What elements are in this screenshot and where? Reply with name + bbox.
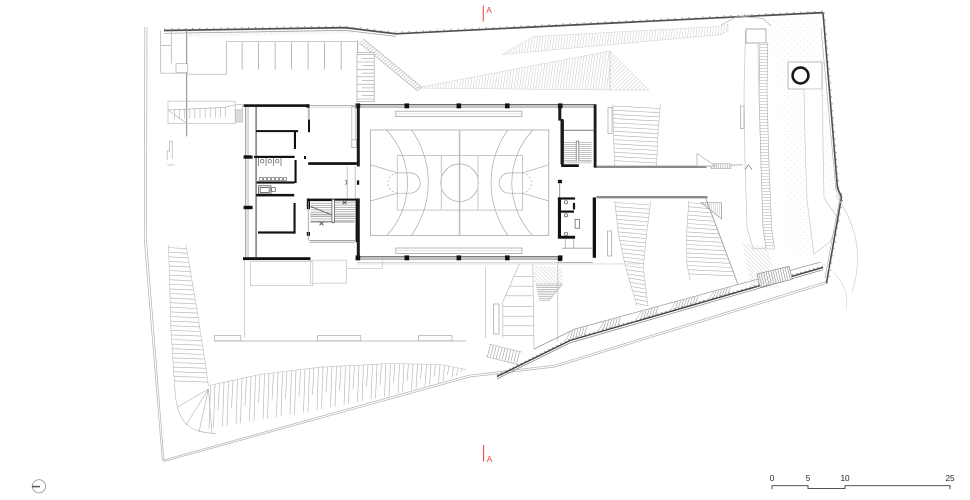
svg-text:5: 5 [806,474,811,483]
svg-text:A: A [486,5,492,15]
svg-text:A: A [487,454,493,464]
svg-text:10: 10 [840,474,850,483]
svg-text:0: 0 [770,474,775,483]
svg-text:25: 25 [945,474,955,483]
